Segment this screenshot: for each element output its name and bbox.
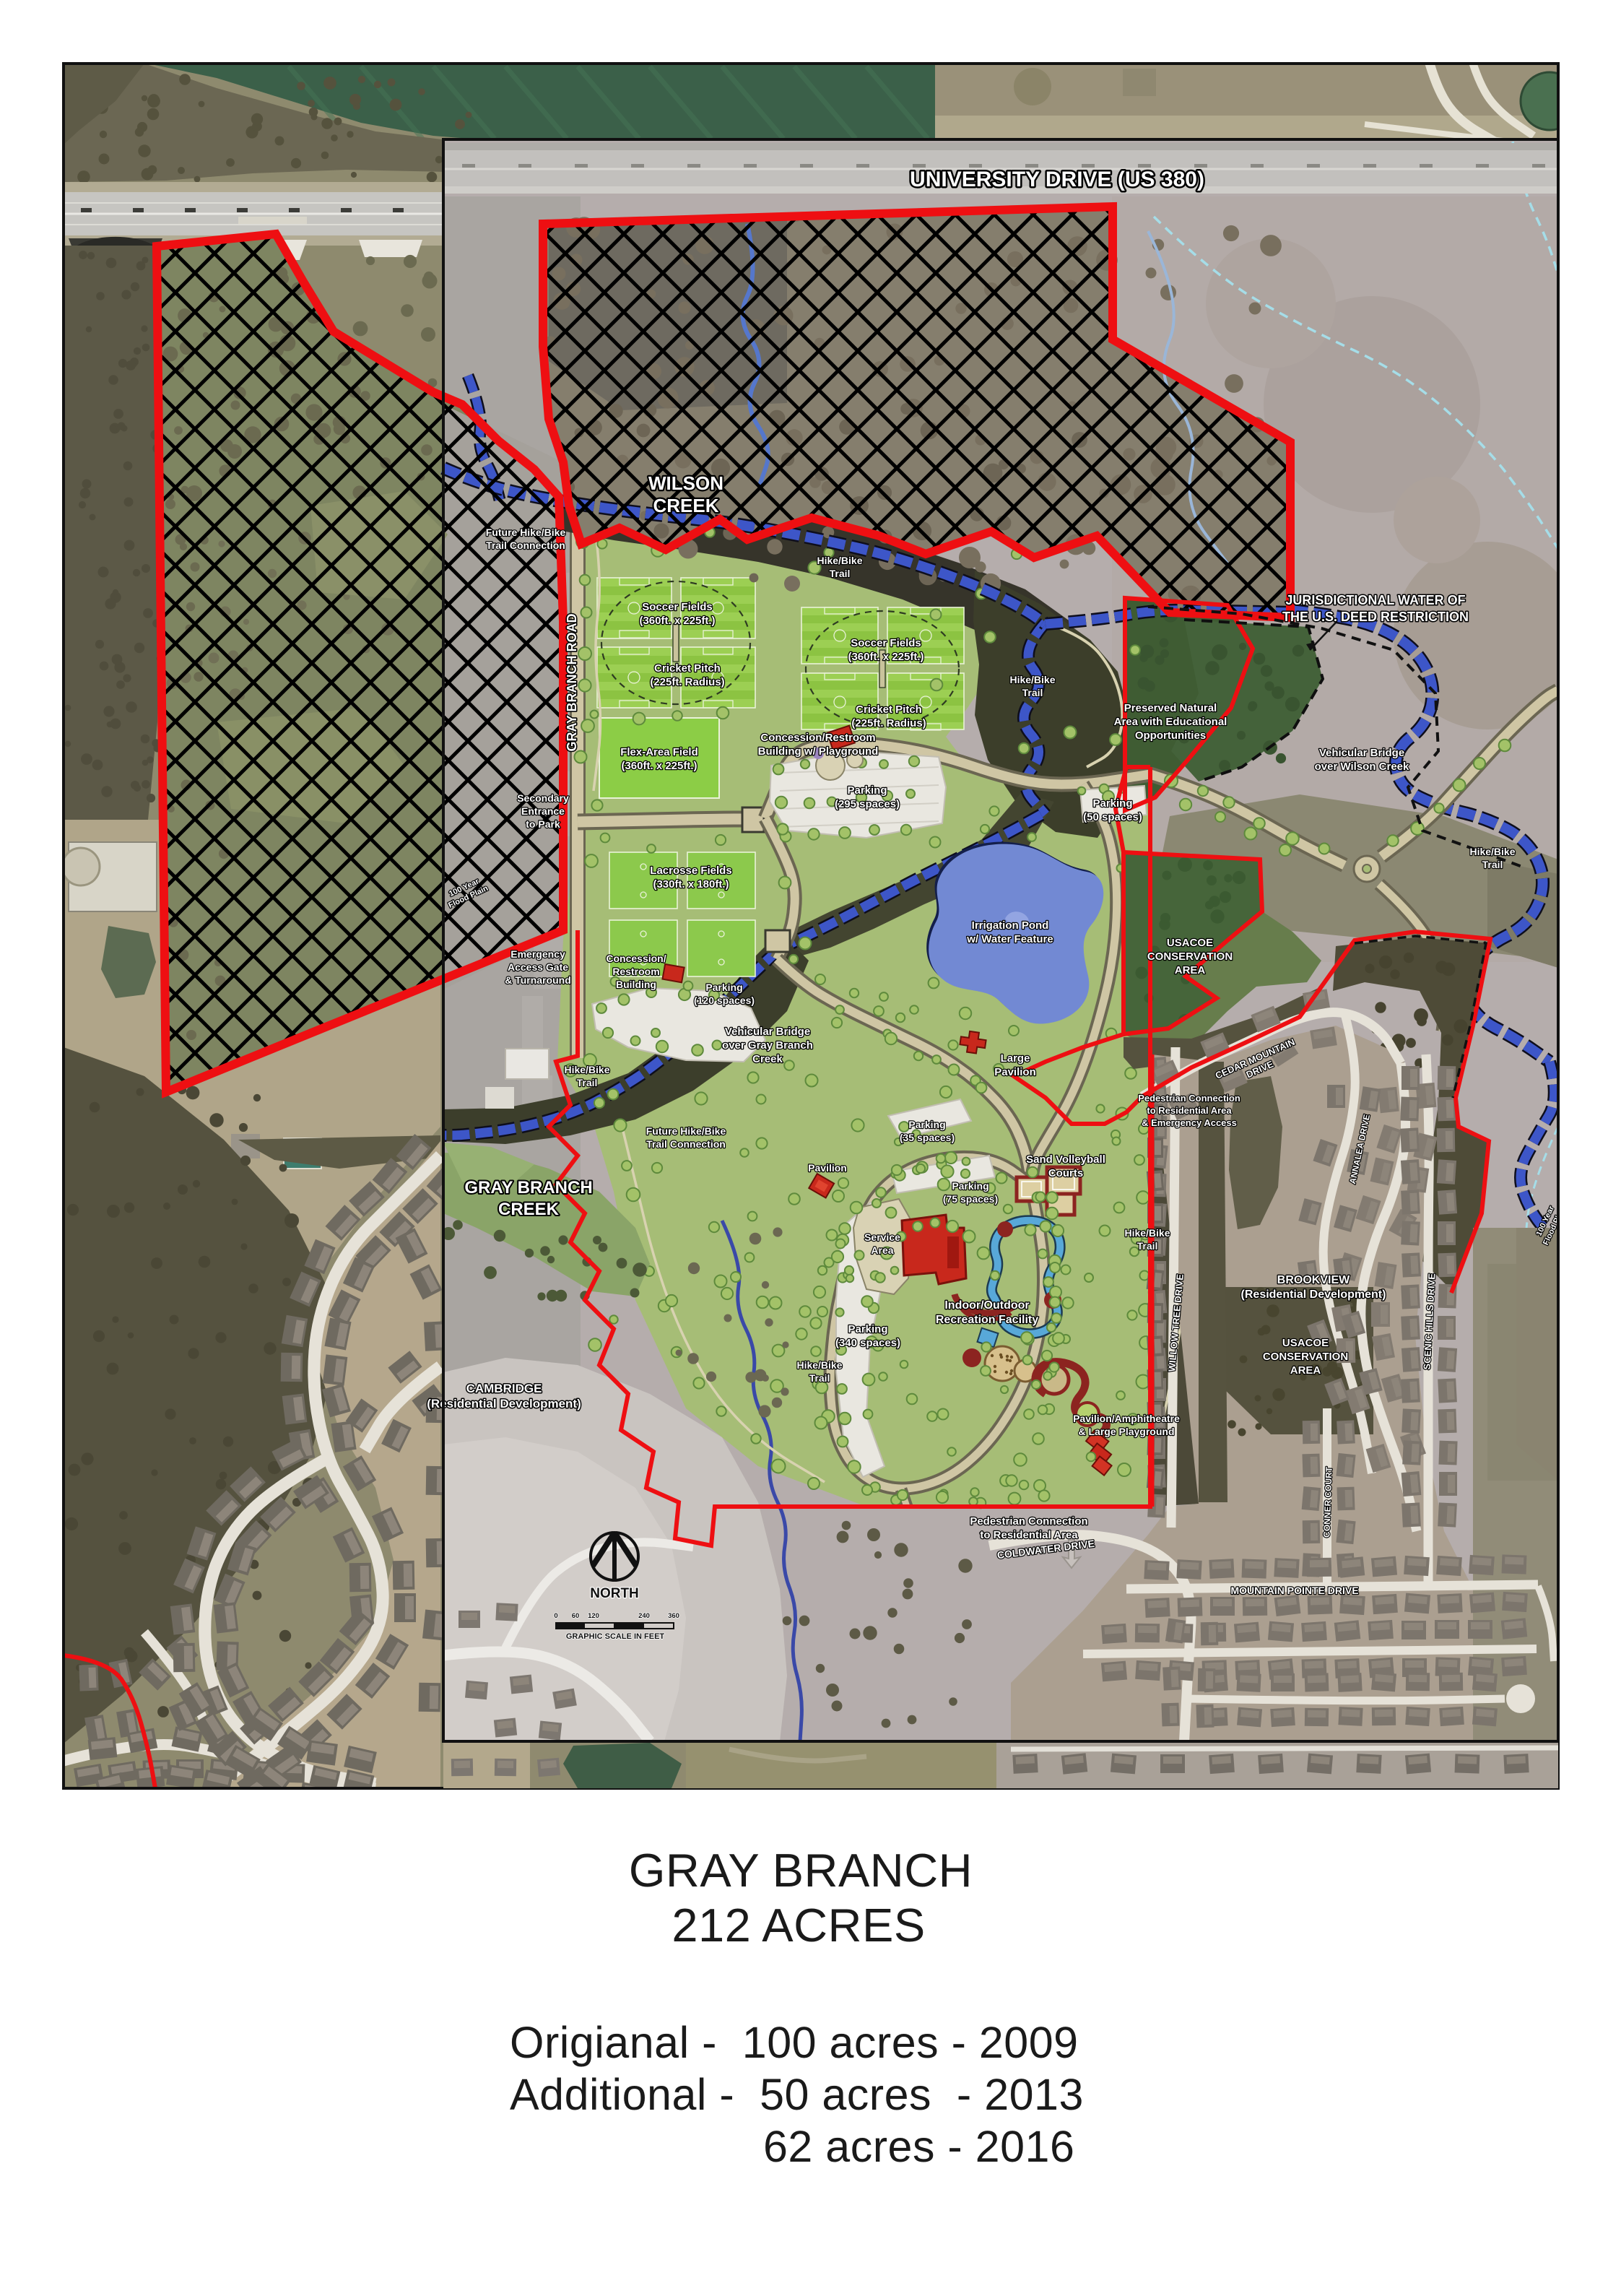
svg-text:WILCRE: WILCRE [1560,1047,1598,1090]
svg-text:60: 60 [572,1612,580,1620]
svg-text:Origianal - 100 acres - 2009: Origianal - 100 acres - 2009 [510,2018,1079,2067]
svg-text:62 acres - 2016: 62 acres - 2016 [763,2122,1074,2171]
svg-text:NORTH: NORTH [590,1586,639,1601]
svg-text:UNIVERSITY DRIVE (US 380): UNIVERSITY DRIVE (US 380) [910,168,1204,191]
svg-text:GRAY BRANCH ROAD: GRAY BRANCH ROAD [565,613,579,751]
svg-text:120: 120 [588,1612,599,1620]
svg-text:Pavilion: Pavilion [808,1162,847,1174]
svg-text:GRAPHIC SCALE IN FEET: GRAPHIC SCALE IN FEET [566,1632,665,1641]
svg-text:MOUNTAIN POINTE DRIVE: MOUNTAIN POINTE DRIVE [1230,1585,1358,1596]
svg-text:Pedestrian Connectionto Reside: Pedestrian Connectionto Residential Area… [1138,1093,1240,1128]
svg-text:EmergencyAccess Gate& Turnarou: EmergencyAccess Gate& Turnaround [505,948,571,986]
svg-text:GRAY BRANCH: GRAY BRANCH [629,1844,973,1897]
svg-text:0: 0 [554,1612,557,1620]
svg-text:360: 360 [668,1612,679,1620]
svg-text:Additional - 50 acres - 2013: Additional - 50 acres - 2013 [510,2070,1084,2119]
svg-text:240: 240 [638,1612,650,1620]
svg-text:212 ACRES: 212 ACRES [672,1899,925,1951]
svg-text:WILSONCREEK: WILSONCREEK [648,472,723,516]
